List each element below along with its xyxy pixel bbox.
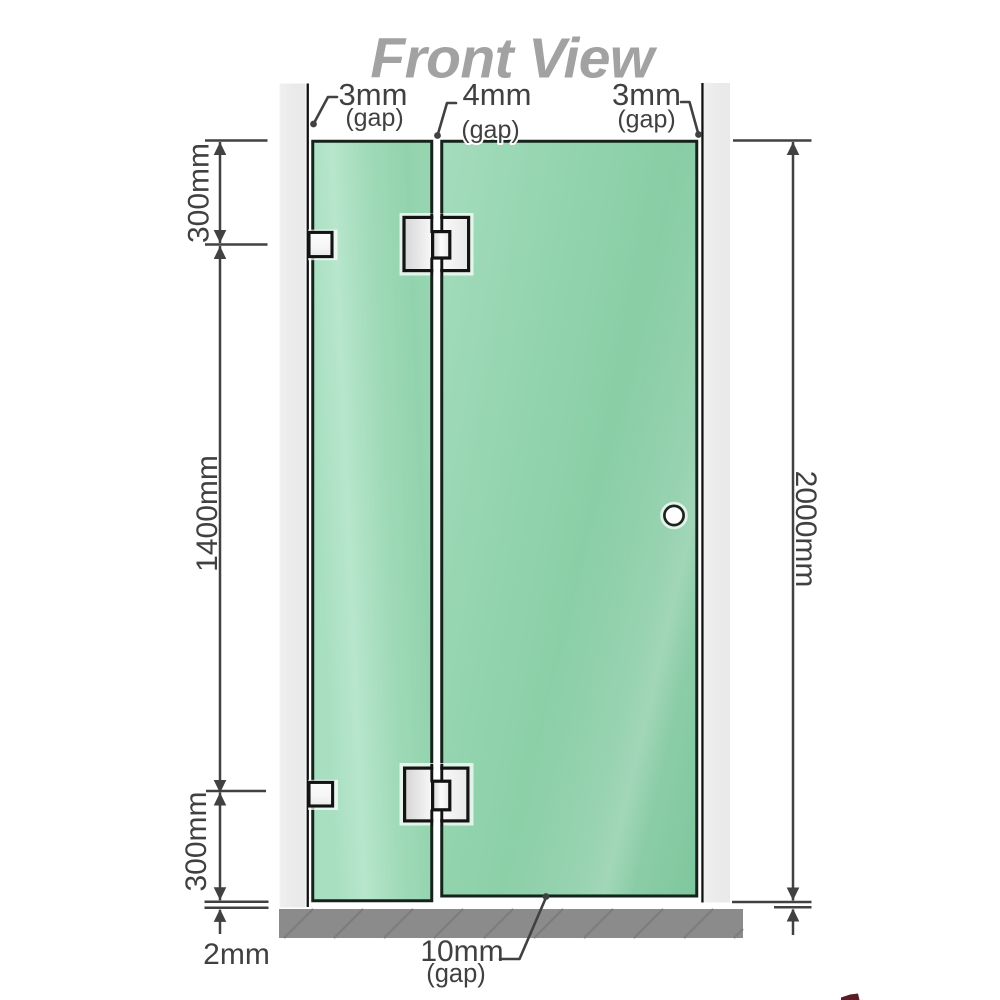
svg-text:2000mm: 2000mm [789,471,822,588]
svg-text:(gap): (gap) [617,106,675,134]
svg-text:300mm: 300mm [180,791,213,891]
svg-text:300mm: 300mm [183,143,216,243]
svg-text:(gap): (gap) [345,104,403,132]
svg-text:2mm: 2mm [203,938,270,971]
svg-text:4mm: 4mm [463,77,532,112]
svg-text:(gap): (gap) [426,960,486,988]
svg-text:(gap): (gap) [461,116,519,144]
svg-text:1400mm: 1400mm [191,455,224,572]
